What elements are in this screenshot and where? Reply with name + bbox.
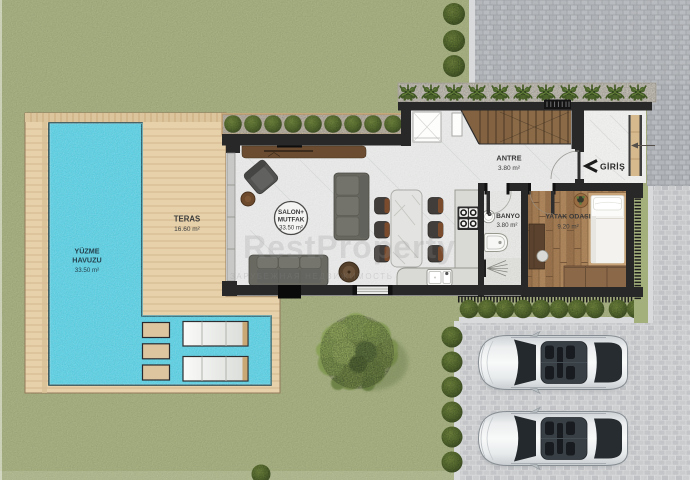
svg-text:9.20 m²: 9.20 m² (557, 224, 578, 231)
svg-text:HAVUZU: HAVUZU (72, 256, 101, 265)
svg-text:16.60 m²: 16.60 m² (174, 226, 200, 233)
svg-text:GİRİŞ: GİRİŞ (600, 162, 625, 172)
svg-text:33.50 m²: 33.50 m² (75, 267, 99, 274)
svg-text:BANYO: BANYO (496, 213, 520, 220)
svg-text:TERAS: TERAS (174, 215, 200, 224)
svg-text:SALON+: SALON+ (278, 209, 304, 216)
svg-text:MUTFAK: MUTFAK (278, 217, 305, 224)
svg-text:RestProperty: RestProperty (243, 229, 456, 265)
svg-text:3.80 m²: 3.80 m² (497, 222, 518, 229)
svg-text:ЗАРУБЕЖНАЯ НЕДВИЖИМОСТЬ: ЗАРУБЕЖНАЯ НЕДВИЖИМОСТЬ (230, 272, 394, 281)
svg-text:YÜZME: YÜZME (74, 247, 99, 256)
svg-text:ANTRE: ANTRE (496, 154, 521, 163)
svg-text:3.80 m²: 3.80 m² (498, 165, 521, 172)
svg-text:YATAK ODASI: YATAK ODASI (545, 214, 590, 221)
